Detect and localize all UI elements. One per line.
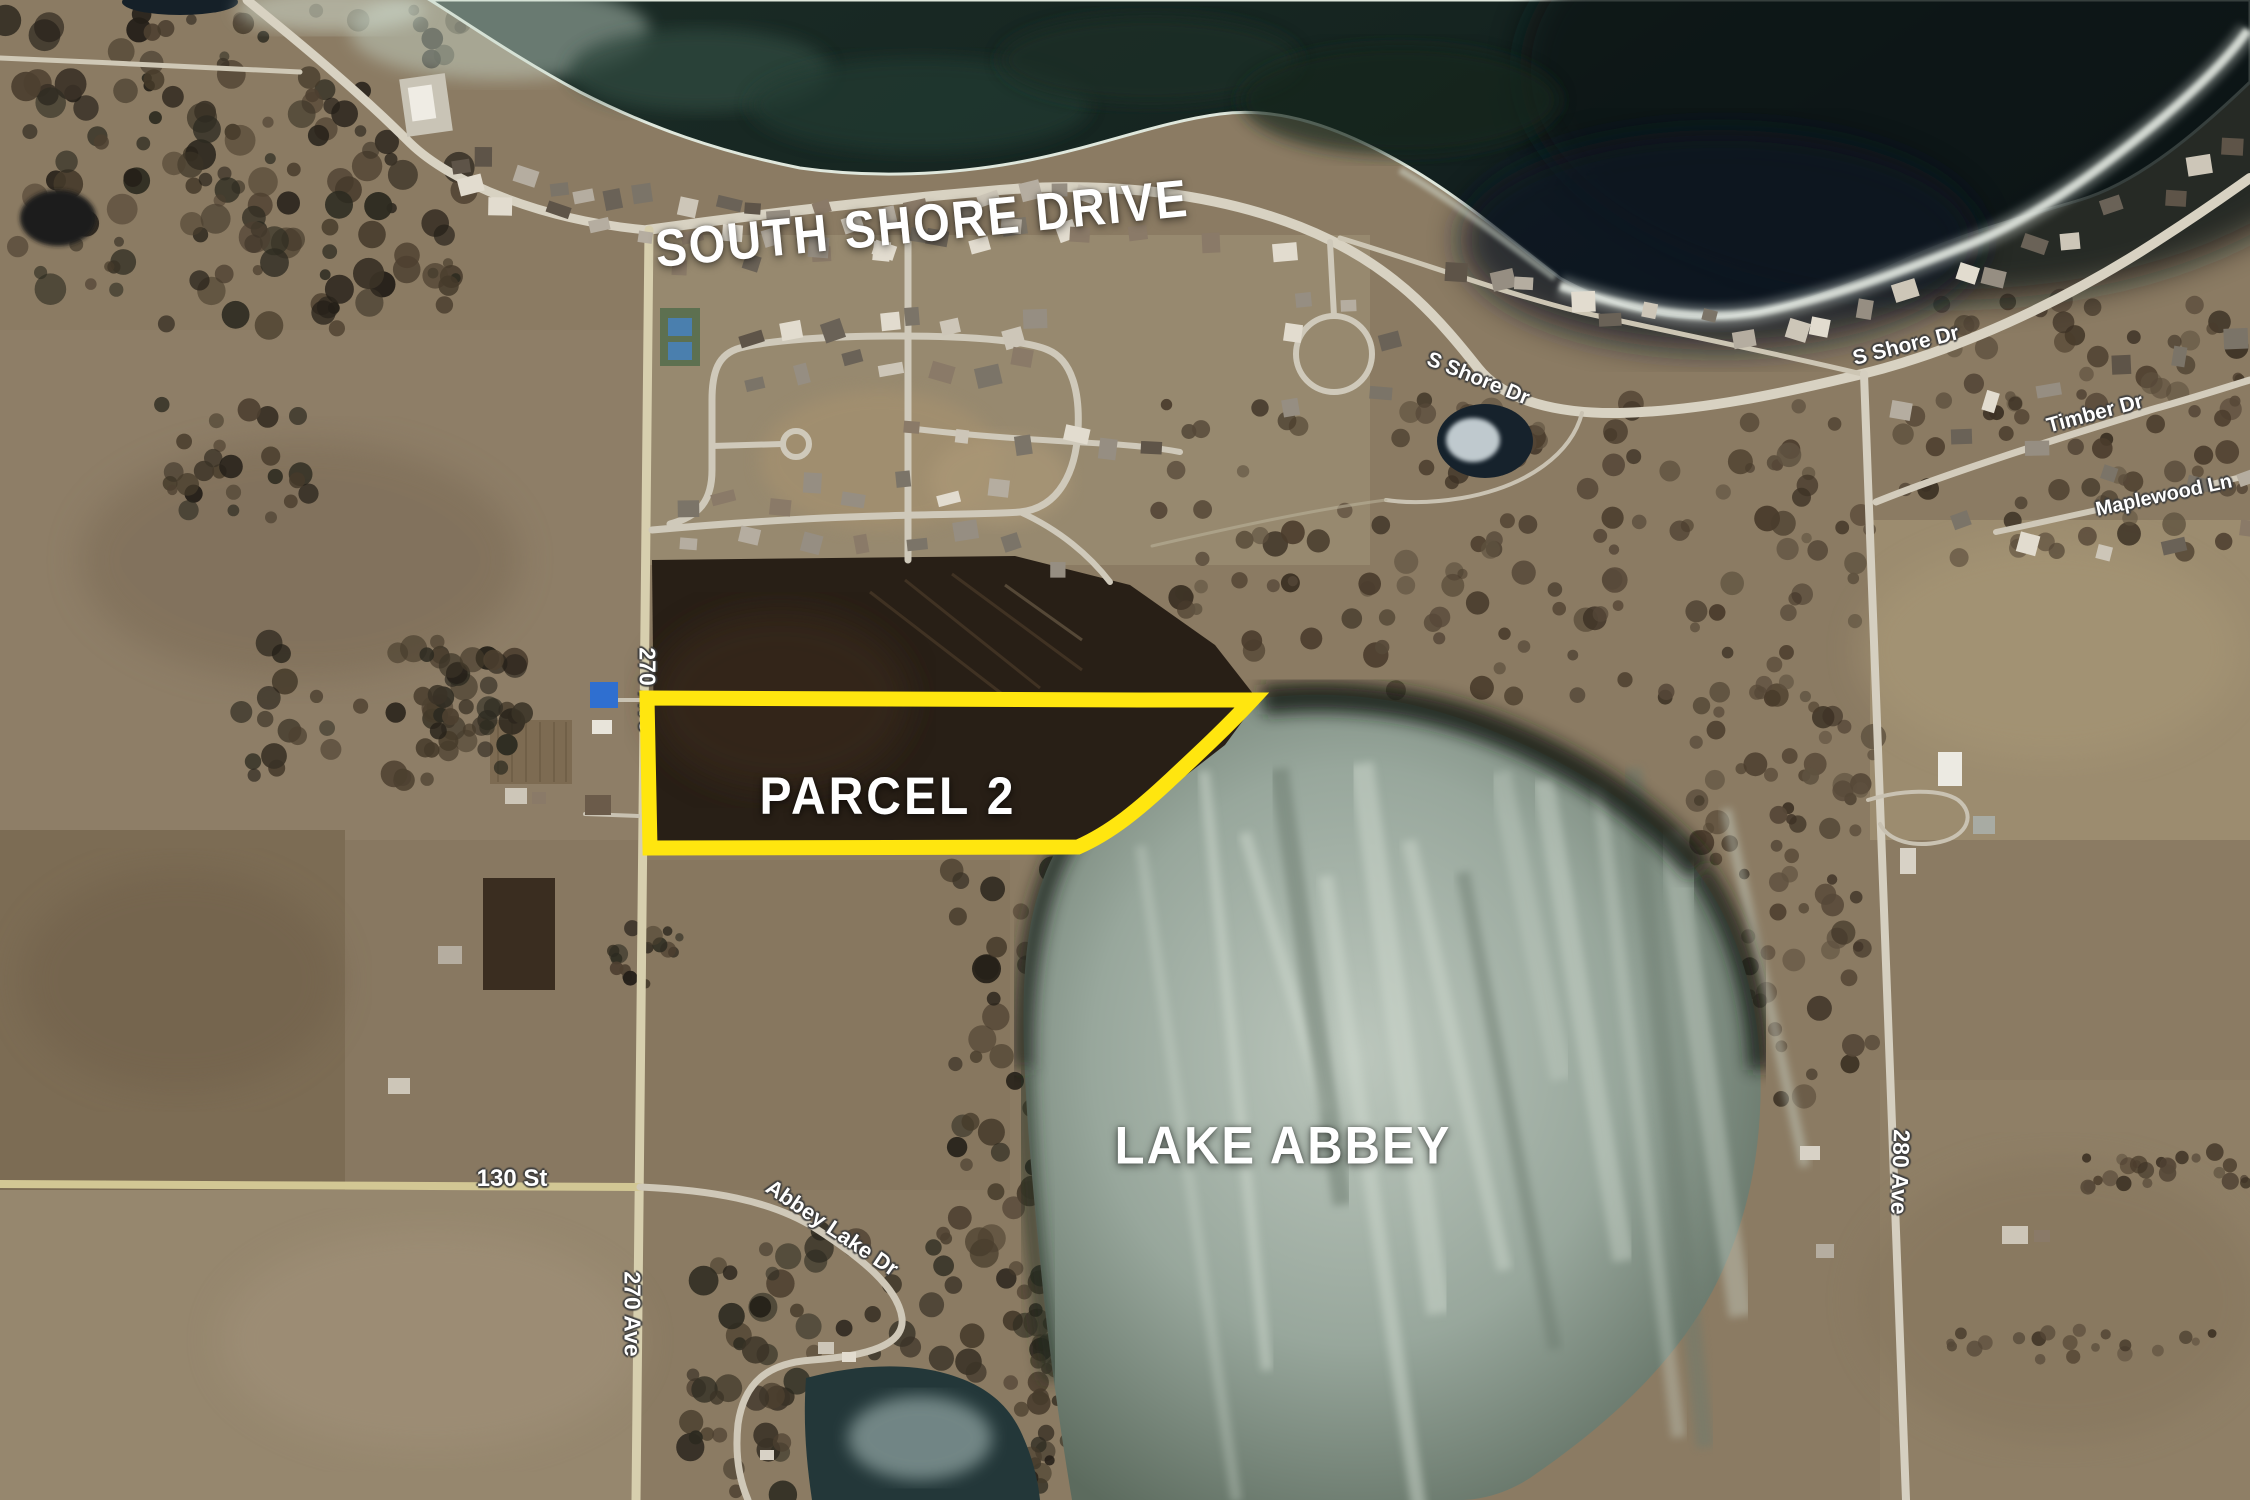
parcel-2-boundary — [647, 698, 1252, 848]
aerial-parcel-map: S Shore Dr S Shore Dr Timber Dr Maplewoo… — [0, 0, 2250, 1500]
parcel-outline-layer — [0, 0, 2250, 1500]
